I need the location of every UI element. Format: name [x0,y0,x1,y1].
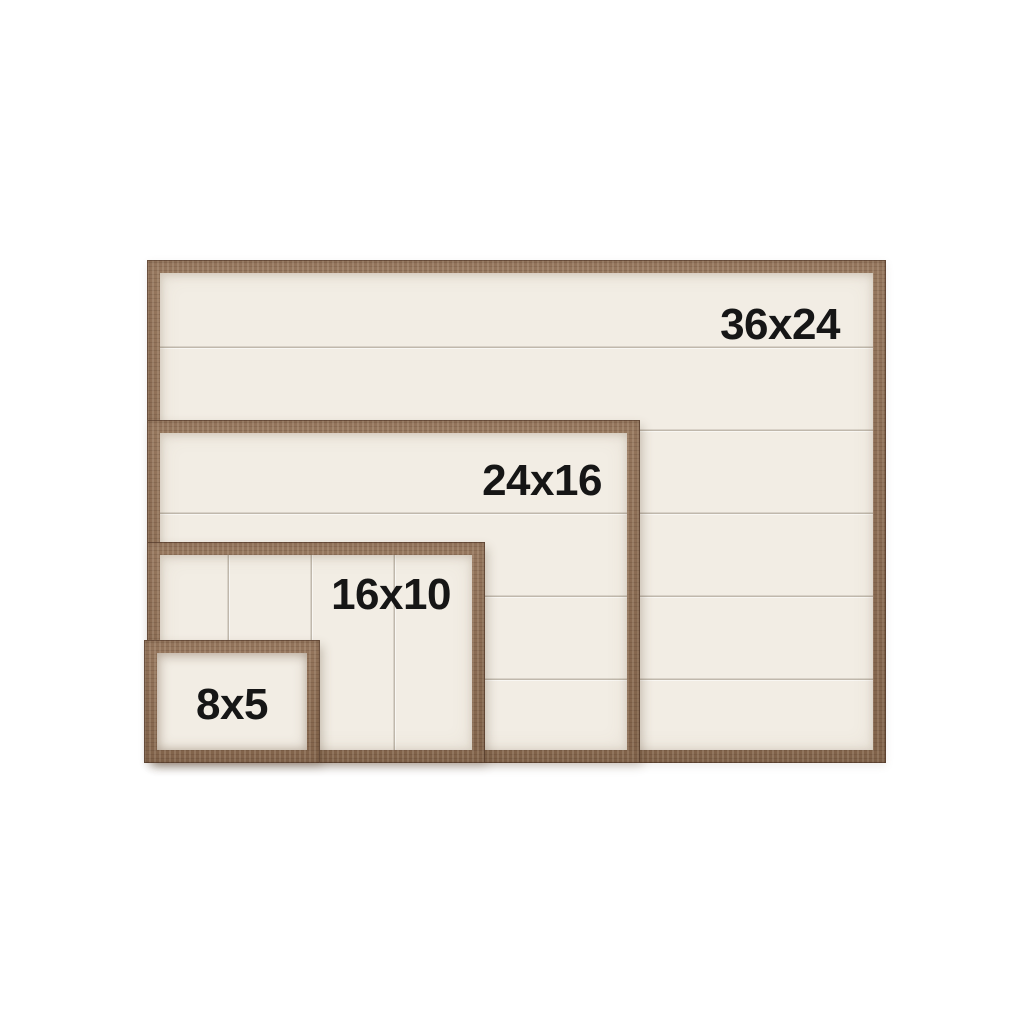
size-label-24x16: 24x16 [482,459,602,503]
size-label-16x10: 16x10 [331,573,451,617]
frame-size-comparison-image: 36x24 24x16 16x10 8x5 [0,0,1024,1024]
size-label-36x24: 36x24 [720,303,840,347]
size-label-8x5: 8x5 [196,683,268,727]
